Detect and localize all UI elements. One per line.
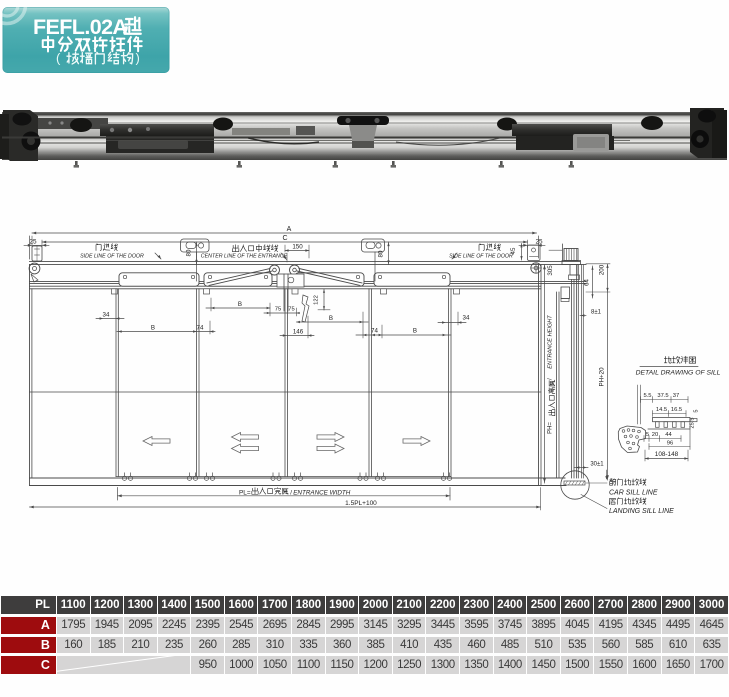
- svg-text:CENTER LINE OF THE ENTRANCE: CENTER LINE OF THE ENTRANCE: [201, 254, 288, 260]
- svg-text:108-148: 108-148: [655, 451, 679, 458]
- svg-text:ENTRANCE WIDTH: ENTRANCE WIDTH: [293, 490, 350, 497]
- svg-text:B: B: [329, 315, 333, 322]
- svg-text:B: B: [151, 325, 155, 332]
- svg-text:74: 74: [197, 325, 204, 332]
- svg-text:45: 45: [510, 247, 517, 254]
- svg-text:/: /: [548, 378, 554, 380]
- svg-text:5: 5: [694, 409, 700, 412]
- svg-text:B: B: [413, 328, 417, 335]
- svg-text:16.5: 16.5: [671, 407, 682, 413]
- svg-text:37.5: 37.5: [657, 393, 668, 399]
- svg-text:96: 96: [667, 441, 673, 447]
- svg-text:25: 25: [535, 239, 543, 246]
- svg-text:25: 25: [29, 239, 37, 246]
- svg-text:122: 122: [314, 295, 320, 305]
- svg-text:34: 34: [463, 315, 470, 322]
- svg-text:CAR SILL LINE: CAR SILL LINE: [609, 490, 658, 497]
- svg-text:150: 150: [292, 244, 303, 251]
- svg-text:200: 200: [599, 264, 606, 275]
- svg-text:74: 74: [371, 328, 378, 335]
- svg-text:SIDE LINE OF THE DOOR: SIDE LINE OF THE DOOR: [80, 254, 144, 260]
- svg-text:5.5: 5.5: [643, 393, 651, 399]
- svg-text:PH=: PH=: [548, 422, 554, 434]
- svg-text:SIDE LINE OF THE DOOR: SIDE LINE OF THE DOOR: [449, 254, 513, 260]
- svg-text:ENTRANCE HEIGHT: ENTRANCE HEIGHT: [548, 315, 554, 369]
- svg-text:PL=: PL=: [239, 490, 251, 497]
- svg-text:34: 34: [103, 312, 110, 319]
- svg-text:64: 64: [585, 279, 591, 286]
- svg-text:75: 75: [275, 307, 281, 313]
- svg-text:30±1: 30±1: [590, 462, 604, 468]
- svg-text:B: B: [238, 301, 242, 308]
- svg-text:/: /: [290, 490, 292, 497]
- svg-text:LANDING SILL LINE: LANDING SILL LINE: [609, 508, 674, 515]
- svg-text:1.5PL+100: 1.5PL+100: [345, 500, 377, 507]
- svg-text:80: 80: [186, 249, 193, 256]
- svg-text:A: A: [287, 226, 292, 233]
- svg-text:8±1: 8±1: [591, 310, 602, 316]
- svg-text:75: 75: [288, 307, 294, 313]
- svg-text:DETAIL DRAWING OF SILL: DETAIL DRAWING OF SILL: [636, 370, 721, 377]
- svg-text:44: 44: [665, 432, 672, 438]
- svg-text:20: 20: [652, 432, 658, 438]
- svg-text:37: 37: [673, 393, 679, 399]
- svg-text:305: 305: [547, 265, 554, 276]
- svg-text:146: 146: [293, 329, 304, 336]
- svg-text:80: 80: [378, 250, 385, 257]
- svg-text:25.5: 25.5: [690, 418, 696, 429]
- svg-text:5: 5: [646, 432, 649, 438]
- svg-text:14.5: 14.5: [656, 407, 667, 413]
- svg-text:C: C: [282, 235, 287, 242]
- svg-text:PH+20: PH+20: [599, 367, 606, 387]
